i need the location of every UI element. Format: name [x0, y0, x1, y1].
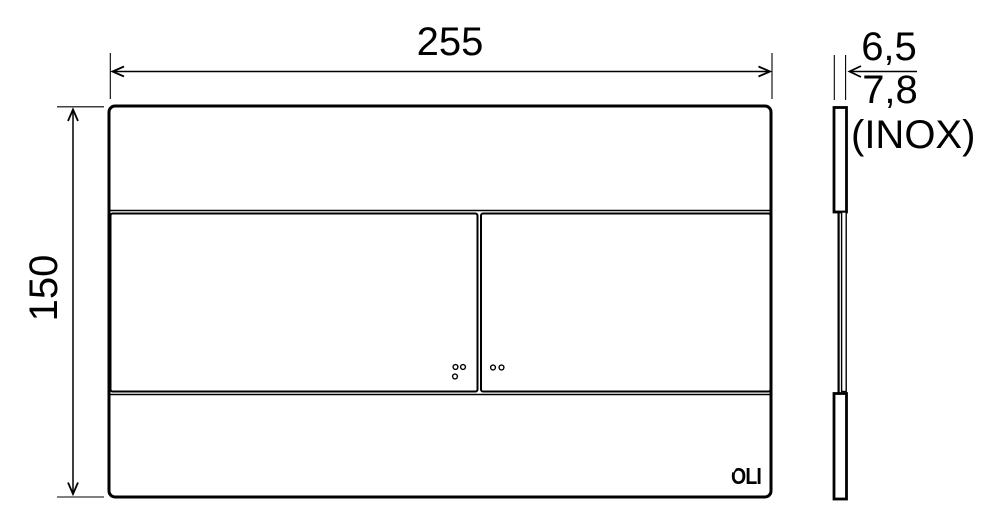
oli-logo: OLI	[731, 463, 761, 489]
side-profile-top	[834, 108, 847, 213]
width-dimension: 255	[110, 20, 772, 99]
thickness-dimension: 6,5 7,8 (INOX)	[834, 25, 975, 157]
thickness-label: 6,5	[861, 25, 917, 69]
front-view: OLI	[109, 106, 771, 497]
flush-plate-technical-drawing: OLI 255 150	[0, 0, 1006, 530]
width-dimension-label: 255	[417, 20, 484, 64]
height-dimension: 150	[22, 107, 104, 497]
inox-note-label: (INOX)	[851, 113, 975, 157]
technical-drawing-page: OLI 255 150	[0, 0, 1006, 530]
small-flush-button	[481, 214, 771, 392]
side-view	[834, 108, 847, 500]
dot	[499, 365, 504, 370]
height-dimension-label: 150	[22, 255, 66, 322]
dot	[491, 365, 496, 370]
dot	[461, 365, 466, 370]
dot	[453, 374, 458, 379]
thickness-inox-label: 7,8	[862, 68, 918, 112]
side-profile-bottom	[834, 394, 847, 500]
dot	[453, 365, 458, 370]
large-flush-button	[111, 214, 478, 392]
side-profile-button-strip	[842, 212, 847, 392]
